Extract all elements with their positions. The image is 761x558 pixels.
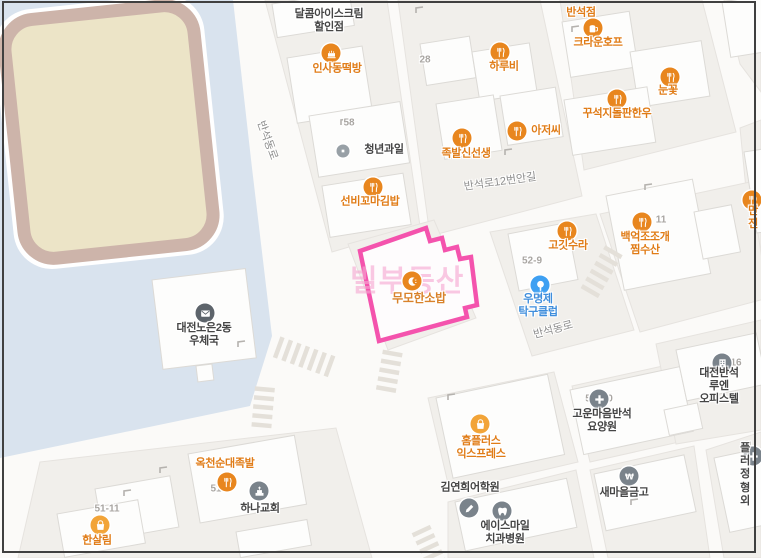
poi-label: 고운마음반석 요양원 xyxy=(573,408,632,434)
store-icon xyxy=(91,516,110,535)
pencil-icon xyxy=(460,499,479,518)
table-tennis-icon xyxy=(531,276,550,295)
church-icon xyxy=(250,482,269,501)
poi-label: 선비꼬마김밥 xyxy=(341,195,400,208)
mail-icon xyxy=(196,304,215,323)
poi-layer: 반석동로 반석로12번안길 반석동로 28 58 11 52-9 51 51-1… xyxy=(0,0,761,558)
poi-label: 대전반석루엔 오피스텔 xyxy=(698,367,740,407)
road-label-banseokro-12beonangil: 반석로12번안길 xyxy=(463,168,537,194)
poi-label: 홈플러스 익스프레스 xyxy=(456,435,505,461)
poi-label: 아저씨 xyxy=(531,124,560,137)
poi-label: 하루비 xyxy=(489,60,518,73)
store-icon xyxy=(471,415,490,434)
restaurant-icon xyxy=(558,222,577,241)
medical-cross-icon xyxy=(590,390,609,409)
dot-icon xyxy=(337,145,350,158)
poi-label: 백억조조개 찜수산 xyxy=(620,231,669,257)
restaurant-icon xyxy=(633,213,652,232)
beer-icon xyxy=(584,19,603,38)
poi-label: 플러 정형외 xyxy=(737,442,753,508)
poi-label: 옥천순대족발 xyxy=(196,457,255,470)
poi-label: 꾸석지돌판한우 xyxy=(583,107,652,120)
restaurant-icon xyxy=(218,473,237,492)
poi-label: 족발신선생 xyxy=(441,147,490,160)
tooth-icon xyxy=(493,502,512,521)
lot-number: 58 xyxy=(343,118,354,129)
poi-label: 고깃수라 xyxy=(548,239,587,252)
restaurant-icon xyxy=(453,129,472,148)
poi-label: 우명제 탁구클럽 xyxy=(518,293,557,319)
lot-number: 51-11 xyxy=(94,504,119,515)
won-icon xyxy=(620,467,639,486)
map-canvas[interactable]: ₩ xyxy=(0,0,761,558)
cake-icon xyxy=(322,44,341,63)
restaurant-icon xyxy=(491,43,510,62)
crescent-icon xyxy=(403,272,422,291)
poi-label: 눈꽃 xyxy=(658,84,678,97)
poi-label: 크라운호프 xyxy=(573,36,622,49)
poi-label: 만전 xyxy=(748,205,758,231)
poi-label: 청년과일 xyxy=(364,143,403,156)
poi-label: 김연희어학원 xyxy=(441,481,500,494)
poi-label: 새마을금고 xyxy=(599,486,648,499)
road-label-banseokdongro-v: 반석동로 xyxy=(254,118,283,162)
poi-label: 인사동떡방 xyxy=(312,62,361,75)
poi-label: 하나교회 xyxy=(240,502,279,515)
lot-number: 52-9 xyxy=(522,256,542,267)
poi-label: 한살림 xyxy=(82,534,111,547)
poi-label: 대전노은2동 우체국 xyxy=(177,322,232,348)
restaurant-icon xyxy=(508,122,527,141)
restaurant-icon xyxy=(364,178,383,197)
restaurant-icon xyxy=(608,90,627,109)
poi-label: 에이스마일 치과병원 xyxy=(480,520,529,546)
lot-number: 11 xyxy=(656,215,667,226)
poi-label: 달콤아이스크림 할인점 xyxy=(295,8,364,34)
lot-number: 28 xyxy=(419,55,430,66)
selected-place-label: 무모한소밥 xyxy=(392,291,446,305)
road-label-banseokdongro-h: 반석동로 xyxy=(531,316,574,342)
